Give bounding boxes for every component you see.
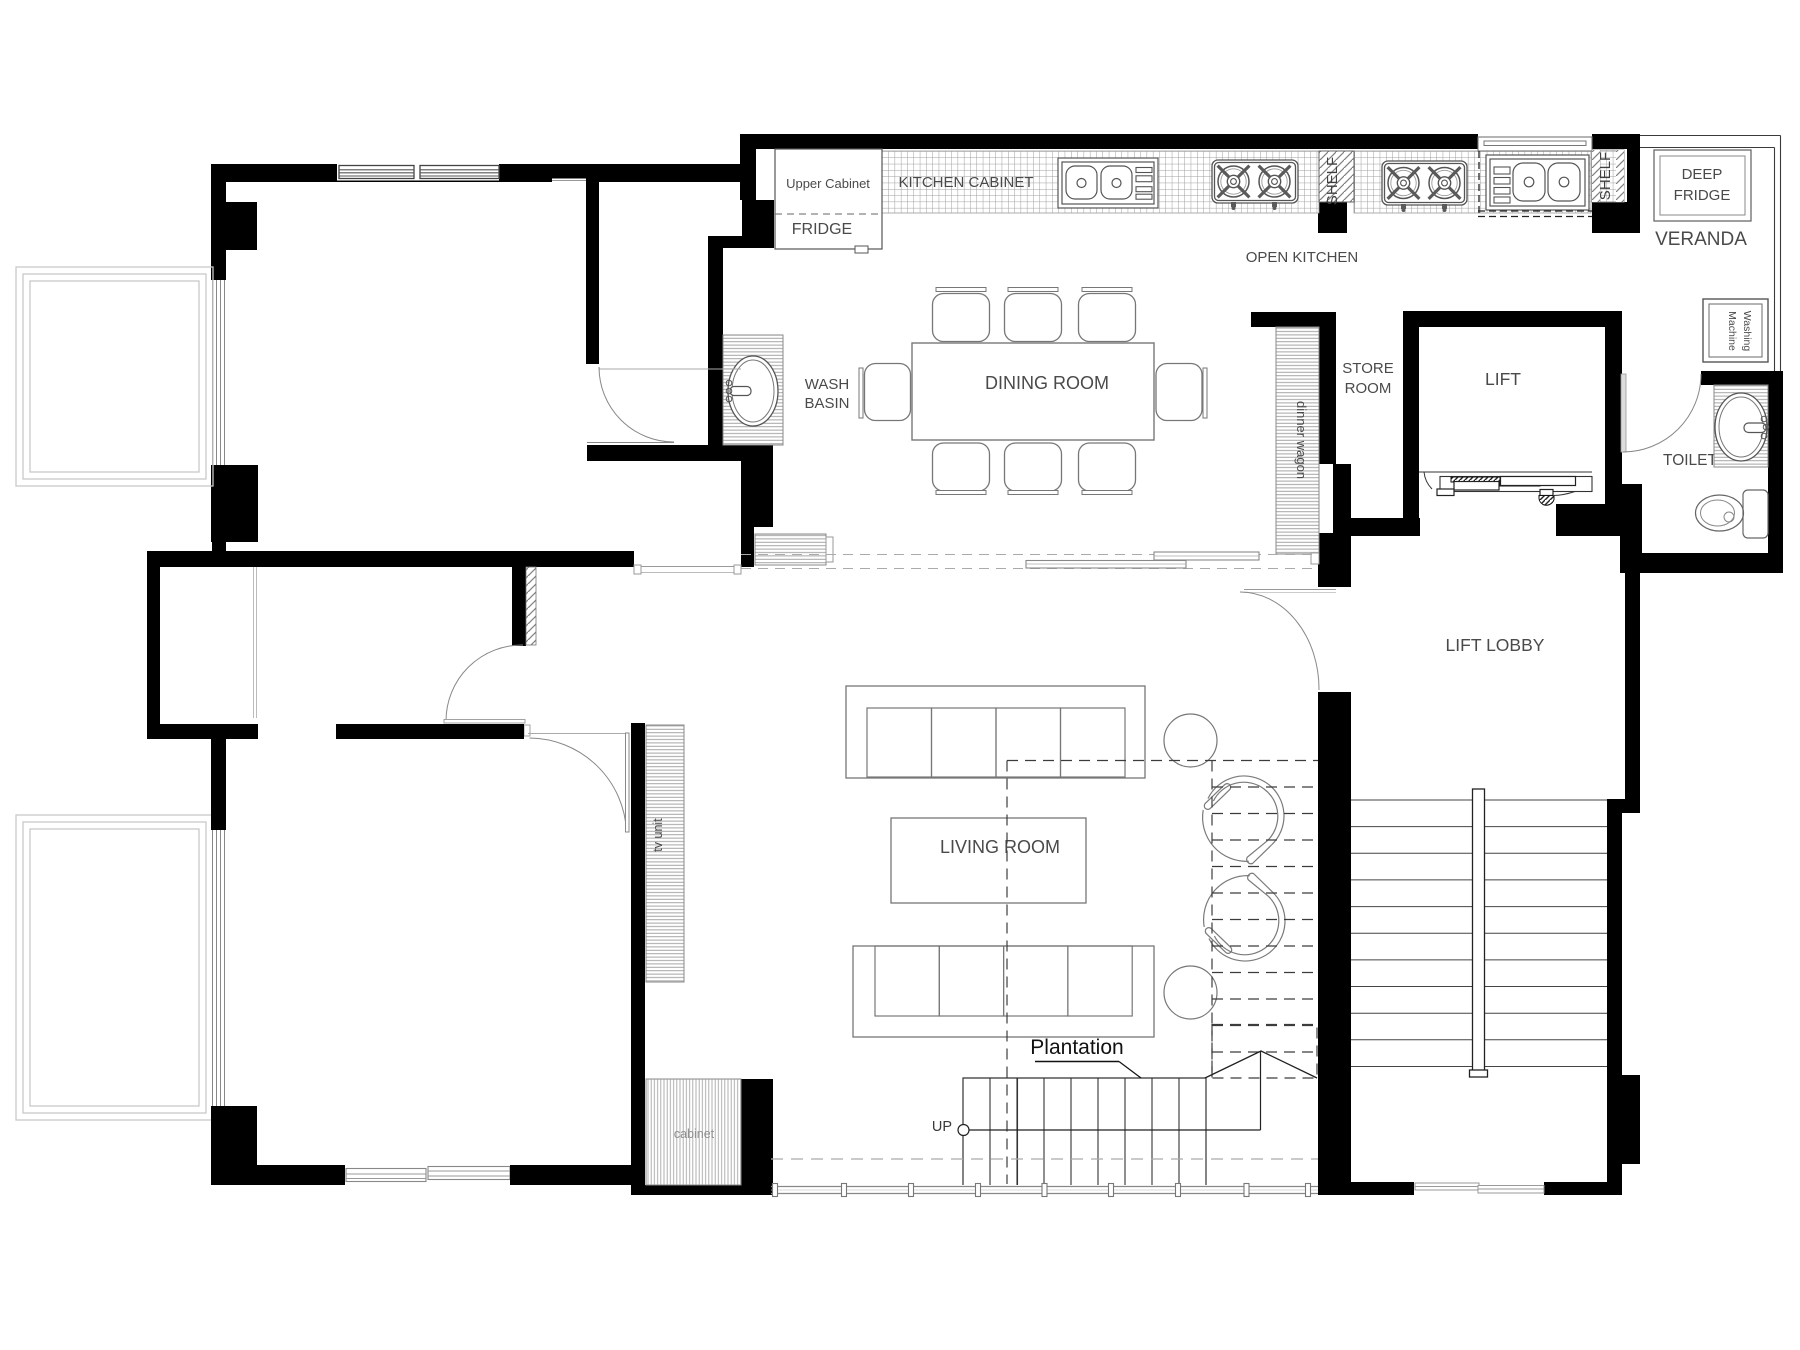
svg-text:UP: UP [932, 1119, 952, 1135]
svg-text:VERANDA: VERANDA [1655, 229, 1747, 250]
svg-text:WASH: WASH [805, 376, 849, 393]
svg-text:STORE: STORE [1342, 360, 1393, 377]
svg-text:DINING ROOM: DINING ROOM [985, 373, 1109, 393]
svg-text:BASIN: BASIN [804, 395, 849, 412]
svg-text:DEEP: DEEP [1682, 166, 1723, 183]
svg-text:FRIDGE: FRIDGE [1674, 187, 1731, 204]
svg-text:cabinet: cabinet [674, 1127, 715, 1141]
svg-text:Upper Cabinet: Upper Cabinet [786, 176, 870, 191]
svg-text:SHELF: SHELF [1324, 157, 1341, 205]
svg-text:OPEN KITCHEN: OPEN KITCHEN [1246, 249, 1359, 266]
svg-text:LIFT LOBBY: LIFT LOBBY [1446, 635, 1545, 655]
svg-text:Plantation: Plantation [1030, 1036, 1123, 1059]
svg-text:KITCHEN CABINET: KITCHEN CABINET [898, 174, 1033, 191]
svg-text:dinner wagon: dinner wagon [1294, 401, 1309, 479]
svg-text:Washing: Washing [1741, 311, 1753, 352]
svg-text:ROOM: ROOM [1345, 380, 1392, 397]
svg-text:LIFT: LIFT [1485, 369, 1521, 389]
svg-text:FRIDGE: FRIDGE [792, 221, 852, 238]
svg-text:TOILET: TOILET [1663, 452, 1718, 469]
svg-text:LIVING ROOM: LIVING ROOM [940, 837, 1060, 857]
svg-text:Machine: Machine [1726, 311, 1738, 351]
svg-text:tv unit: tv unit [651, 818, 665, 852]
svg-text:SHELF: SHELF [1597, 152, 1614, 200]
